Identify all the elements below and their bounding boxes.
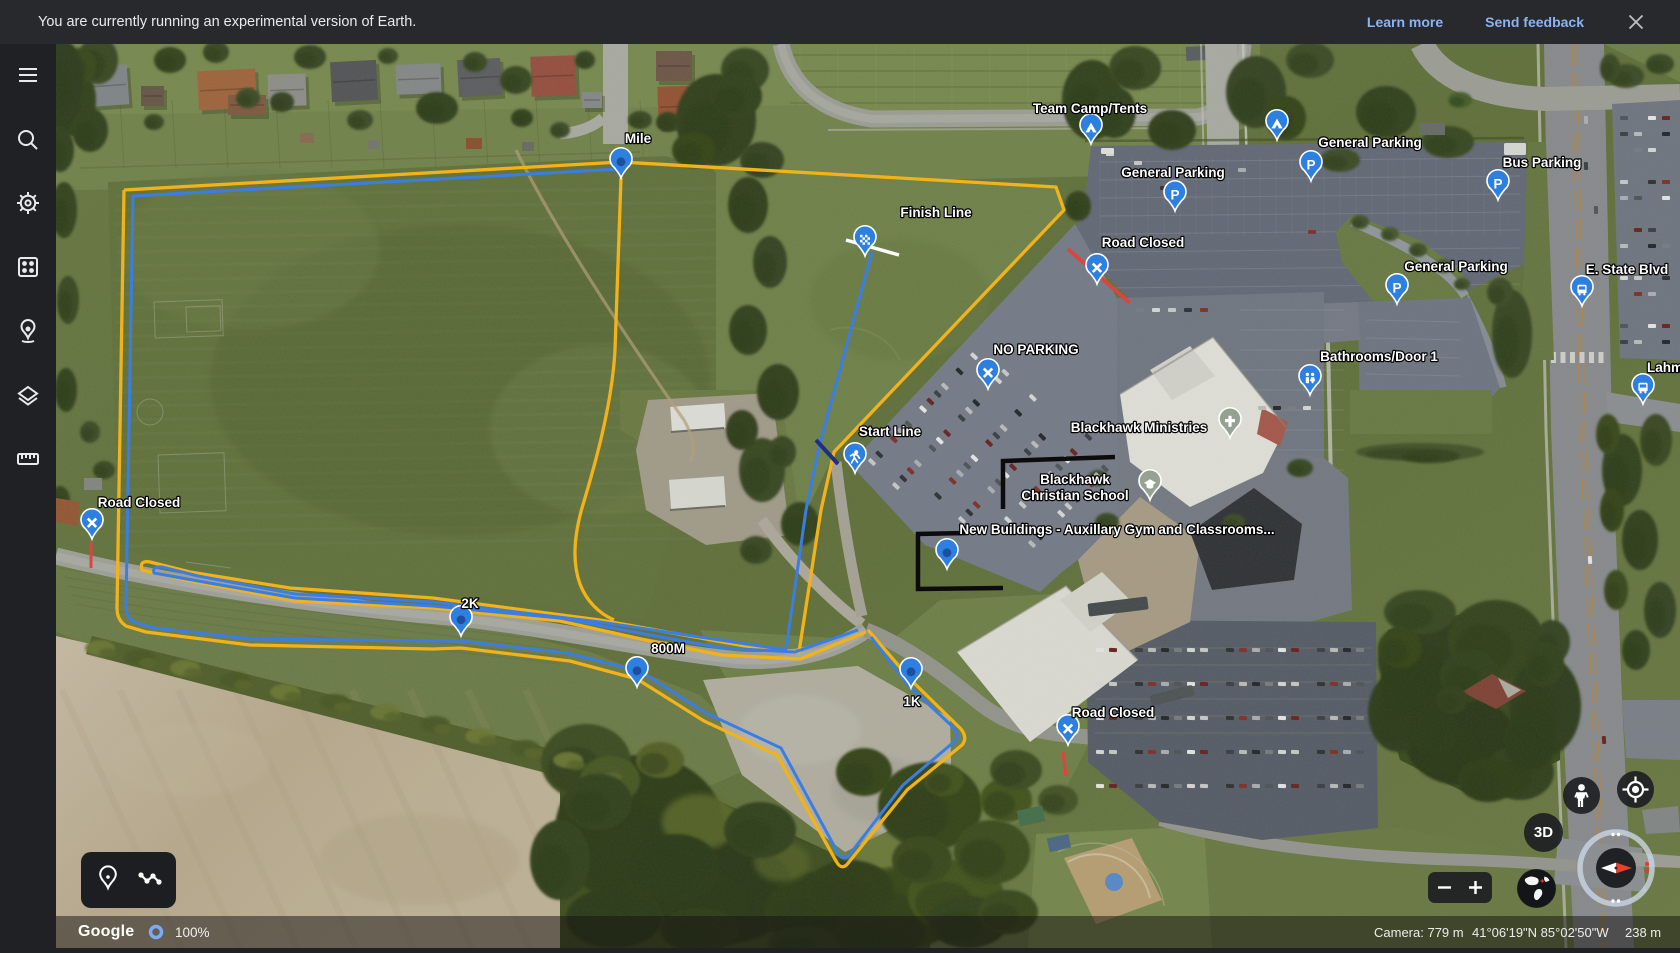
svg-text:P: P [1306,158,1315,173]
svg-text:P: P [1493,177,1502,192]
svg-text:Finish Line: Finish Line [900,205,972,220]
svg-text:Blackhawk: Blackhawk [1040,472,1110,487]
svg-text:Start Line: Start Line [859,424,922,439]
svg-text:Christian School: Christian School [1021,488,1128,503]
svg-text:Road Closed: Road Closed [1072,705,1155,720]
svg-text:Bus Parking: Bus Parking [1503,155,1582,170]
svg-text:Road Closed: Road Closed [1102,235,1185,250]
svg-text:General Parking: General Parking [1404,259,1508,274]
svg-text:P: P [1392,281,1401,296]
svg-text:800M: 800M [651,641,685,656]
svg-text:E. State Blvd: E. State Blvd [1586,262,1669,277]
svg-text:General Parking: General Parking [1318,135,1422,150]
svg-text:Mile: Mile [625,131,652,146]
svg-text:Road Closed: Road Closed [98,495,181,510]
svg-text:General Parking: General Parking [1121,165,1225,180]
svg-text:NO PARKING: NO PARKING [993,342,1078,357]
svg-text:1K: 1K [903,694,921,709]
svg-text:Bathrooms/Door 1: Bathrooms/Door 1 [1320,349,1438,364]
svg-text:2K: 2K [461,596,479,611]
svg-text:Team Camp/Tents: Team Camp/Tents [1033,101,1147,116]
svg-text:Blackhawk Ministries: Blackhawk Ministries [1071,420,1208,435]
svg-text:New Buildings - Auxillary Gym: New Buildings - Auxillary Gym and Classr… [959,522,1274,537]
svg-text:P: P [1170,188,1179,203]
svg-text:Lahm: Lahm [1647,360,1680,375]
